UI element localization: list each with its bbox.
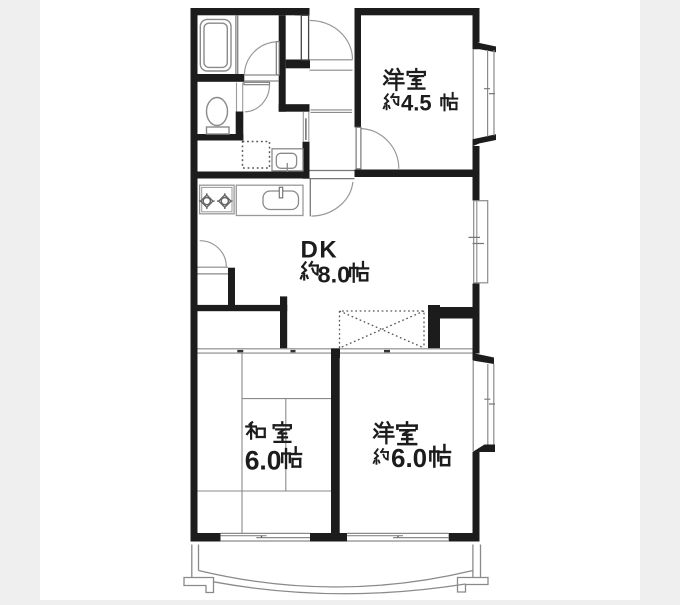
svg-text:6.0: 6.0: [391, 443, 427, 473]
svg-text:6.0: 6.0: [245, 445, 282, 475]
svg-text:8.0: 8.0: [318, 262, 351, 288]
svg-text:4.5: 4.5: [401, 91, 432, 116]
svg-text:DK: DK: [301, 237, 339, 264]
